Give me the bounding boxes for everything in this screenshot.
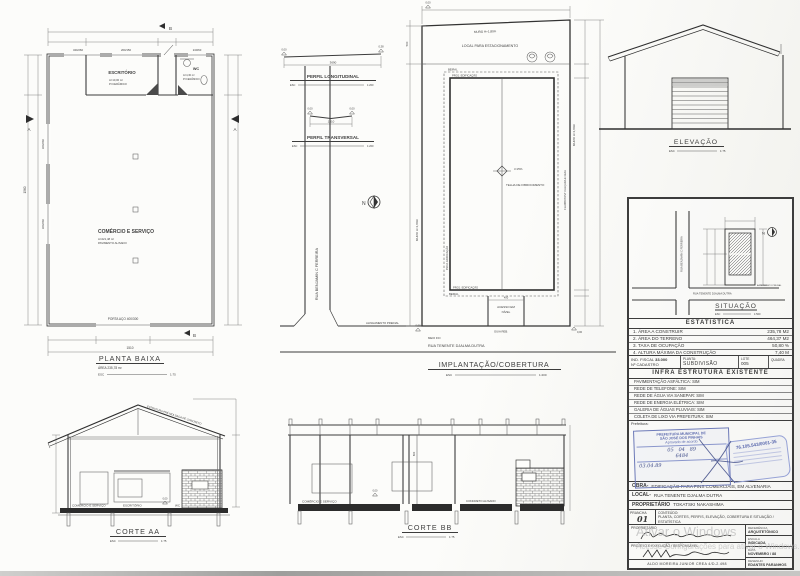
cadastro-fiscal: IND. FISCAL 33.000 Nº CADASTRO <box>629 356 681 368</box>
porta-label: PORTA AÇO 400/300 <box>108 317 139 321</box>
corte-aa-floor <box>58 508 230 526</box>
title-block: N RUA BENJAMIN C FERREIRA RUA TENENTE DJ… <box>627 197 794 570</box>
meta-escala: ESCALAINDICADA <box>746 536 792 547</box>
situacao-streets <box>632 211 785 315</box>
svg-text:1:200: 1:200 <box>539 373 547 377</box>
svg-text:ESC: ESC <box>110 539 116 543</box>
engineer-signature <box>637 546 737 560</box>
svg-text:B: B <box>193 333 196 338</box>
parking-label: LOCAL PARA ESTACIONAMENTO <box>462 44 519 48</box>
dim-value: 1510 <box>126 346 133 350</box>
corte-aa-interior <box>80 470 222 508</box>
room-label: COMÉRCIO E SERVIÇO <box>98 227 154 235</box>
panel-title: CORTE BB <box>408 523 453 532</box>
approval-signature <box>681 431 751 489</box>
svg-text:ESC: ESC <box>98 373 105 377</box>
engineer-signature-box: PROJETO E EXECUÇÃO / RESPONSÁVEL <box>629 543 745 561</box>
svg-text:0,00: 0,00 <box>577 330 583 334</box>
tree-symbols <box>527 52 555 62</box>
owner-signature <box>637 528 737 542</box>
svg-text:1:75: 1:75 <box>170 373 176 377</box>
corte-bb-brick-wall <box>516 460 564 506</box>
stat-row: 4. ALTURA MÁXIMA DA CONSTRUÇÃO7,40 M <box>629 350 792 357</box>
infra-row: GALERIA DE ÁGUAS PLUVIAIS: SIM <box>629 407 792 414</box>
crea-strip: ALDO MOREIRA JUNIOR CREA 4/D-2.498 <box>629 560 745 568</box>
room-label: WC <box>193 67 200 71</box>
approval-stamps-area: Prefeitura: PREFEITURA MUNICIPAL DE SÃO … <box>629 421 792 481</box>
svg-text:ACESSO EM: ACESSO EM <box>497 305 515 309</box>
corte-bb-windows <box>312 435 432 504</box>
north-arrow: N <box>362 196 380 208</box>
door-swing-escritorio <box>146 83 158 95</box>
proprietario-row: PROPRIETÁRIOTOKATSKI NAKASHIMA <box>629 501 792 510</box>
dim-value: 600 <box>412 451 416 456</box>
dim-value: 1560 <box>23 186 27 193</box>
room-label: WC <box>175 504 181 508</box>
implantacao-drawing: RUA BENJAMIN C FERREIRA RUA TENENTE DJAL… <box>278 0 622 392</box>
situacao-panel: N RUA BENJAMIN C FERREIRA RUA TENENTE DJ… <box>629 199 792 319</box>
corte-aa-roof <box>48 405 225 448</box>
svg-text:B: B <box>169 26 172 31</box>
svg-text:P=CERÂMICO: P=CERÂMICO <box>183 78 200 81</box>
street-name-horizontal: RUA TENENTE DJALMA DUTRA <box>693 292 732 296</box>
conteudo-cell: CONTEÚDO: PLANTA, CORTES, PERFIS, ELEVAÇ… <box>656 510 792 524</box>
svg-text:PAVIMENTO ALISADO: PAVIMENTO ALISADO <box>98 241 128 245</box>
infra-row: REDE DE ÁGUA VIA SANEPAR: SIM <box>629 393 792 400</box>
blueprint-sheet: A A B B 340/260 200/150 240/60 360/260 3… <box>0 0 800 576</box>
muro-label: MURO H=1,80m <box>474 29 497 34</box>
svg-text:P=CERÂMICO: P=CERÂMICO <box>109 82 127 86</box>
svg-text:i=15%: i=15% <box>514 167 523 171</box>
corte-bb-floor <box>298 504 564 524</box>
street-name-vertical: RUA BENJAMIN C FERREIRA <box>680 236 684 272</box>
corte-bb-drawing: COMÉRCIO E SERVIÇO CONCRETO ALISADO 0,00… <box>276 396 576 572</box>
meiofio-label: MEIO FIO <box>428 336 441 340</box>
signatures-and-meta: PROPRIETÁRIO PROJETO E EXECUÇÃO / RESPON… <box>629 525 792 568</box>
svg-text:1:75: 1:75 <box>161 539 167 543</box>
prancha-conteudo-row: PRANCHA 01 CONTEÚDO: PLANTA, CORTES, PER… <box>629 510 792 525</box>
access-gate: 400 ACESSO EM NÍVEL <box>488 296 524 326</box>
svg-text:0,00: 0,00 <box>425 1 431 5</box>
infra-row: COLETA DE LIXO VIA PREFEITURA: SIM <box>629 414 792 421</box>
svg-text:0,00: 0,00 <box>415 324 421 328</box>
svg-text:A=10,00 m²: A=10,00 m² <box>109 78 123 82</box>
situacao-drawing: N RUA BENJAMIN C FERREIRA RUA TENENTE DJ… <box>629 199 792 317</box>
svg-text:1:500: 1:500 <box>754 312 761 316</box>
meta-referencia: REFERÊNCIAARQUITETÔNICO <box>746 525 792 536</box>
steel-rolling-door <box>672 78 728 129</box>
panel-title: SITUAÇÃO <box>715 301 757 310</box>
muro-label: MURO H=1,80m <box>572 123 576 146</box>
svg-text:1:75: 1:75 <box>720 149 726 153</box>
elevacao-drawing: ELEVAÇÃO ESC 1:75 <box>597 16 795 158</box>
prancha-cell: PRANCHA 01 <box>629 510 656 524</box>
scan-edge-band <box>0 571 800 576</box>
door-swing-wc <box>178 85 188 95</box>
panel-title: IMPLANTAÇÃO/COBERTURA <box>439 360 550 369</box>
window-tag: 360/260 <box>41 139 45 150</box>
guia-label: GUIA REB. <box>494 330 508 334</box>
svg-text:A=4,30 m²: A=4,30 m² <box>183 74 195 77</box>
window-tag: 360/260 <box>41 219 45 230</box>
svg-text:ESC: ESC <box>446 373 453 377</box>
elevation-walls <box>599 55 791 129</box>
stat-row: 3. TAXA DE OCUPAÇÃO50,80 % <box>629 343 792 350</box>
svg-text:N: N <box>762 231 765 236</box>
planta-columns <box>133 154 138 263</box>
infra-row: REDE DE TELEFONE: SIM <box>629 386 792 393</box>
svg-text:ESC: ESC <box>669 149 675 153</box>
room-label: ESCRITÓRIO <box>123 503 142 508</box>
svg-text:1:75: 1:75 <box>449 535 455 539</box>
cadastro-planta: PLANTA: SUBDIVISÃO <box>681 356 739 368</box>
svg-text:ESC: ESC <box>715 312 720 316</box>
svg-text:NÍVEL: NÍVEL <box>502 310 511 314</box>
window-tag: 240/60 <box>193 48 202 52</box>
local-row: LOCAL-RUA TENENTE DJALMA DUTRA <box>629 491 792 500</box>
svg-text:0,00: 0,00 <box>373 490 378 493</box>
corte-aa-drawing: ESTRUTURA PRÉ MOLDADA DE CONCRETO COMÉRC… <box>22 386 274 574</box>
corte-bb-beam <box>288 419 566 435</box>
svg-text:PROJ. EDIFICAÇÃO: PROJ. EDIFICAÇÃO <box>453 285 478 290</box>
lot-boundary <box>422 20 570 326</box>
floor-label: CONCRETO ALISADO <box>466 499 496 503</box>
flamboyant-label: FLAMBOYANT CALÇADA E GUIA <box>563 170 567 210</box>
svg-text:A: A <box>27 127 30 132</box>
estatistica-header: ESTATISTICA <box>629 319 792 329</box>
roof-slope-symbol: i=15% TELHA DE FIBROCIMENTO <box>493 166 545 187</box>
room-label: COMÉRCIO E SERVIÇO <box>72 503 106 508</box>
svg-text:PROJ. EDIFICAÇÃO: PROJ. EDIFICAÇÃO <box>444 246 449 270</box>
muro-label: MURO H=1,80m <box>415 218 419 241</box>
window-tag: 200/150 <box>121 48 132 52</box>
room-label: ESCRITÓRIO <box>108 70 136 75</box>
svg-text:ESC: ESC <box>398 535 404 539</box>
prefeitura-label: Prefeitura: <box>631 422 649 426</box>
area-note: ÁREA 235,78 m² <box>98 366 122 370</box>
alinhamento-label: ALINHAMENTO PREDIAL <box>366 321 399 325</box>
panel-title: PLANTA BAIXA <box>99 354 161 363</box>
svg-text:A: A <box>233 127 236 132</box>
stat-row: 1. ÁREA A CONSTRUIR235,78 M2 <box>629 329 792 336</box>
street-name-vertical: RUA BENJAMIN C FERREIRA <box>315 247 319 300</box>
svg-text:PROJ. EDIFICAÇÃO: PROJ. EDIFICAÇÃO <box>452 73 477 78</box>
cadastro-row: IND. FISCAL 33.000 Nº CADASTRO PLANTA: S… <box>629 356 792 369</box>
meta-desenho: DESENHOEDANTES PARANHOS <box>746 558 792 568</box>
window-tag: 340/260 <box>73 48 84 52</box>
infra-row: PAVIMENTAÇÃO ASFÁLTICA: SIM <box>629 379 792 386</box>
room-label: COMÉRCIO E SERVIÇO <box>302 498 337 503</box>
svg-text:BEIRAL: BEIRAL <box>448 68 458 72</box>
elevation-roof <box>608 25 781 61</box>
svg-text:400: 400 <box>504 296 509 300</box>
alinhamento-label: ALINHAMENTO PREDIAL <box>757 284 782 287</box>
infra-header: INFRA ESTRUTURA EXISTENTE <box>629 369 792 379</box>
svg-text:0,00: 0,00 <box>163 498 168 501</box>
planta-baixa-drawing: A A B B 340/260 200/150 240/60 360/260 3… <box>12 4 270 382</box>
svg-text:BEIRAL: BEIRAL <box>449 292 459 296</box>
stat-row: 2. ÁREA DO TERRENO464,37 M2 <box>629 336 792 343</box>
dim-value: 500 <box>405 41 409 46</box>
impl-dims <box>406 6 604 326</box>
street-name-horizontal: RUA TENENTE DJALMA DUTRA <box>428 344 485 348</box>
cadastro-quadra: QUADRA <box>769 356 792 368</box>
owner-signature-box: PROPRIETÁRIO <box>629 525 745 543</box>
panel-title: ELEVAÇÃO <box>674 137 718 146</box>
planta-walls <box>45 45 213 328</box>
cadastro-lote: LOTE 005 <box>739 356 769 368</box>
svg-text:N: N <box>362 201 366 207</box>
meta-data: DATANOVEMBRO / 88 <box>746 547 792 558</box>
planta-dimension-lines <box>24 28 242 356</box>
panel-title: CORTE AA <box>116 527 160 536</box>
svg-text:TELHA DE FIBROCIMENTO: TELHA DE FIBROCIMENTO <box>506 183 545 187</box>
infra-row: REDE DE ENERGIA ELÉTRICA: SIM <box>629 400 792 407</box>
